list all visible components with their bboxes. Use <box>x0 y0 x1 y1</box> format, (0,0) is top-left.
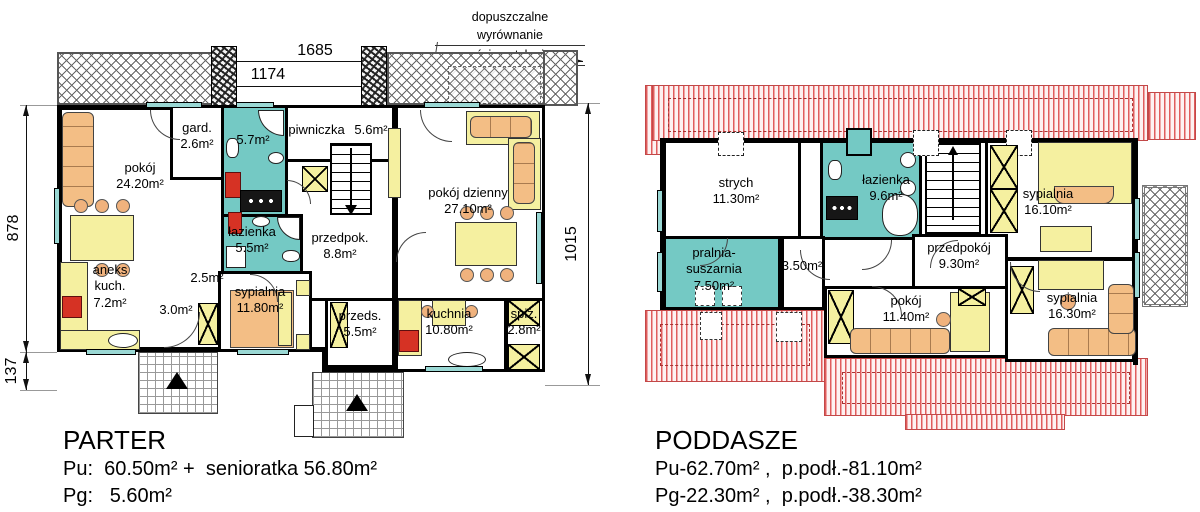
room-label: sypialnia 16.30m² <box>1047 290 1098 323</box>
room-name: strych <box>713 175 760 191</box>
chair <box>500 268 514 282</box>
window <box>425 366 483 372</box>
dresser <box>1040 226 1092 252</box>
boiler-red <box>225 172 241 198</box>
shelf-xbox <box>958 288 986 306</box>
roof-window-dashed <box>776 312 802 342</box>
room-name: spiż. <box>507 306 540 322</box>
room-area: 5.5m² <box>339 324 382 340</box>
room-area: 11.80m² <box>235 300 286 316</box>
pantry-shelf-xbox <box>508 344 540 370</box>
wardrobe-xbox <box>198 303 218 345</box>
chair <box>480 268 494 282</box>
roof-window-dashed <box>700 312 722 340</box>
room-area: 2.8m² <box>507 322 540 338</box>
stairs-down-arrow <box>345 205 357 215</box>
room-area: 11.40m² <box>883 309 930 325</box>
nightstand <box>296 280 310 296</box>
door-arc <box>862 240 892 270</box>
stairs-direction-line <box>350 148 352 206</box>
room-name: pokój dzienny <box>428 185 508 201</box>
chimney <box>913 130 939 156</box>
plant-box <box>361 46 387 110</box>
room-area: 3.0m² <box>159 302 192 318</box>
chair <box>74 199 88 213</box>
wall-alignment-solid-area <box>543 50 578 106</box>
corner-sofa <box>513 142 535 204</box>
toilet <box>282 250 300 262</box>
room-label: spiż. 2.8m² <box>507 306 540 339</box>
room-name: sypialnia <box>1047 290 1098 306</box>
chair <box>936 312 951 327</box>
corner-sofa <box>1108 284 1134 334</box>
roof-edge-dashed-line <box>668 98 1133 132</box>
cooker-red <box>399 330 419 352</box>
nightstand <box>296 334 310 350</box>
room-area: 24.20m² <box>116 176 164 192</box>
dim-label-137: 137 <box>3 358 21 385</box>
floorplan-drawing: dopuszczalne wyrównanie ściany tylnej 16… <box>0 0 1200 512</box>
room-label: przedpok. 8.8m² <box>311 230 368 263</box>
room-area: 27.10m² <box>428 201 508 217</box>
extension-line <box>545 385 600 386</box>
dim-label-1685: 1685 <box>297 42 333 60</box>
room-area: 5.6m² <box>351 122 390 137</box>
wall-alignment-dashed-area <box>448 66 541 104</box>
porch-step <box>294 405 314 437</box>
terrace-hatch-left <box>57 52 215 105</box>
roof-hatch-top-right <box>1148 92 1196 140</box>
entrance-arrow <box>346 394 368 411</box>
room-area: 8.8m² <box>311 246 368 262</box>
window <box>424 102 480 108</box>
balcony-hatch <box>1142 185 1188 307</box>
room-label: 3.0m² <box>159 302 192 318</box>
window <box>146 102 202 108</box>
parter-area-line1: Pu: 60.50m² + senioratka 56.80m² <box>63 458 377 481</box>
room-label: strych 11.30m² <box>713 175 760 208</box>
wardrobe-xbox <box>990 189 1018 233</box>
window <box>1134 198 1140 240</box>
room-label: pralnia- suszarnia 7.50m² <box>674 245 754 294</box>
room-area: 7.2m² <box>79 295 141 311</box>
wardrobe-xbox <box>990 145 1018 189</box>
room-name: sypialnia <box>235 284 286 300</box>
stairs-direction-line <box>952 150 954 220</box>
room-name: piwniczka <box>285 122 347 137</box>
sofa <box>62 112 94 207</box>
toilet <box>828 160 842 180</box>
room-label: łazienka 9.6m² <box>862 172 910 205</box>
room-name: łazienka <box>862 172 910 188</box>
room-area: 5.7m² <box>236 132 269 148</box>
dining-table <box>455 222 517 266</box>
stove-cluster <box>826 196 858 220</box>
room-area: 9.6m² <box>862 188 910 204</box>
chimney <box>718 132 744 156</box>
room-label: sypialnia 11.80m² <box>235 284 286 317</box>
window <box>236 102 274 108</box>
room-label: pokój dzienny 27.10m² <box>428 185 508 218</box>
parter-title: PARTER <box>63 425 166 456</box>
chimney <box>846 128 872 156</box>
room-label: gard. 2.6m² <box>180 120 213 153</box>
dim-line-878 <box>26 105 27 352</box>
room-name: przedpokój <box>927 240 991 256</box>
window <box>54 188 60 244</box>
room-area: 16.30m² <box>1047 306 1098 322</box>
dim-label-878: 878 <box>5 215 23 242</box>
note-line1: dopuszczalne wyrównanie <box>435 8 585 46</box>
kitchen-sink <box>448 352 486 367</box>
window <box>657 190 663 232</box>
room-name: pokój <box>116 160 164 176</box>
window <box>237 349 289 355</box>
kitchen-sink <box>108 333 138 348</box>
room-name: przeds. <box>339 308 382 324</box>
room-name: łazienka <box>228 224 276 240</box>
room-area: 11.30m² <box>713 191 760 207</box>
room-name: przedpok. <box>311 230 368 246</box>
window <box>86 349 136 355</box>
tall-cabinet <box>388 128 401 198</box>
room-area: 9.30m² <box>927 256 991 272</box>
room-label: przeds. 5.5m² <box>339 308 382 341</box>
chair <box>95 199 109 213</box>
chair <box>116 199 130 213</box>
room-area: 10.80m² <box>425 322 473 338</box>
room-name: kuchnia <box>425 306 473 322</box>
poddasze-title: PODDASZE <box>655 425 798 456</box>
room-label: pokój 24.20m² <box>116 160 164 193</box>
sofa <box>850 328 950 354</box>
room-label: pokój 11.40m² <box>883 293 930 326</box>
dim-line-1015 <box>588 103 589 385</box>
stove-cluster <box>240 190 282 212</box>
extension-line <box>20 390 57 391</box>
room-label: łazienka 5.5m² <box>228 224 276 257</box>
room-name: pokój <box>883 293 930 309</box>
stairs-up-arrow <box>948 146 958 155</box>
roof-hatch-bottom-step <box>905 414 1065 430</box>
parter-area-line2: Pg: 5.60m² <box>63 485 172 508</box>
sink <box>268 152 284 164</box>
dim-label-1015: 1015 <box>563 226 581 262</box>
room-area: 3.50m² <box>782 258 822 274</box>
room-area: 2.6m² <box>180 136 213 152</box>
window <box>536 212 542 284</box>
dining-table <box>70 215 134 261</box>
entrance-arrow <box>166 372 188 389</box>
room-label: przedpokój 9.30m² <box>927 240 991 273</box>
room-name: gard. <box>180 120 213 136</box>
corner-sofa <box>470 116 532 138</box>
room-area: 7.50m² <box>674 278 754 294</box>
plant-box <box>211 46 237 110</box>
chair <box>460 268 474 282</box>
wardrobe-xbox <box>302 166 328 192</box>
room-area: 2.5m² <box>190 270 223 286</box>
room-label: 2.5m² <box>190 270 223 286</box>
dim-label-1174: 1174 <box>251 66 285 84</box>
dim-line-137 <box>26 352 27 390</box>
room-label: piwniczka 5.6m² <box>285 122 390 138</box>
room-label: 3.50m² <box>782 258 822 274</box>
room-label: aneks kuch. 7.2m² <box>79 262 141 311</box>
room-label: kuchnia 10.80m² <box>425 306 473 339</box>
room-area: 5.5m² <box>228 240 276 256</box>
window <box>1134 252 1140 298</box>
window <box>657 252 663 292</box>
sink <box>900 152 916 168</box>
poddasze-area-line1: Pu-62.70m² , p.podł.-81.10m² <box>655 458 922 481</box>
room-area: 16.10m² <box>1023 202 1074 218</box>
poddasze-area-line2: Pg-22.30m² , p.podł.-38.30m² <box>655 485 922 508</box>
room-label: 5.7m² <box>236 132 269 148</box>
room-name: pralnia- suszarnia <box>674 245 754 278</box>
room-name: aneks kuch. <box>79 262 141 295</box>
desk <box>1038 260 1104 290</box>
roof-edge-dashed-line <box>842 372 1130 404</box>
room-label: sypialnia 16.10m² <box>1023 186 1074 219</box>
room-name: sypialnia <box>1023 186 1074 202</box>
